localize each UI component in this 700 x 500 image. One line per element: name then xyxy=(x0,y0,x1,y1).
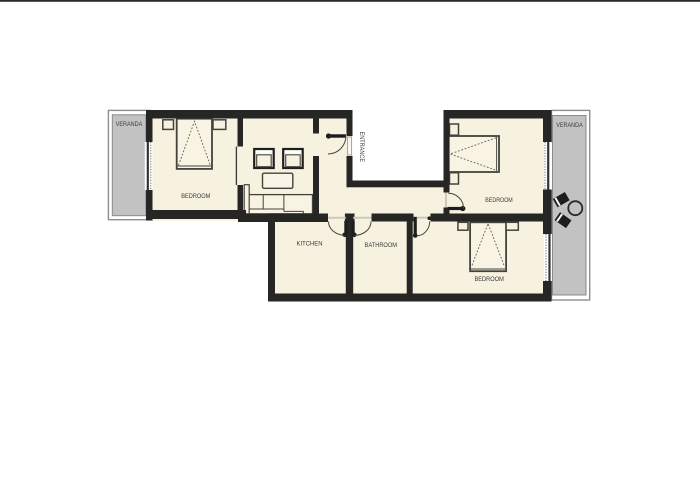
svg-text:ENTRANCE: ENTRANCE xyxy=(358,132,365,163)
svg-text:VERANDA: VERANDA xyxy=(116,121,143,128)
svg-text:BEDROOM: BEDROOM xyxy=(485,197,513,204)
svg-text:BATHROOM: BATHROOM xyxy=(365,242,398,249)
svg-text:BEDROOM: BEDROOM xyxy=(474,276,504,283)
svg-text:VERANDA: VERANDA xyxy=(556,122,583,129)
svg-text:BEDROOM: BEDROOM xyxy=(181,193,210,200)
svg-text:KITCHEN: KITCHEN xyxy=(297,240,323,247)
